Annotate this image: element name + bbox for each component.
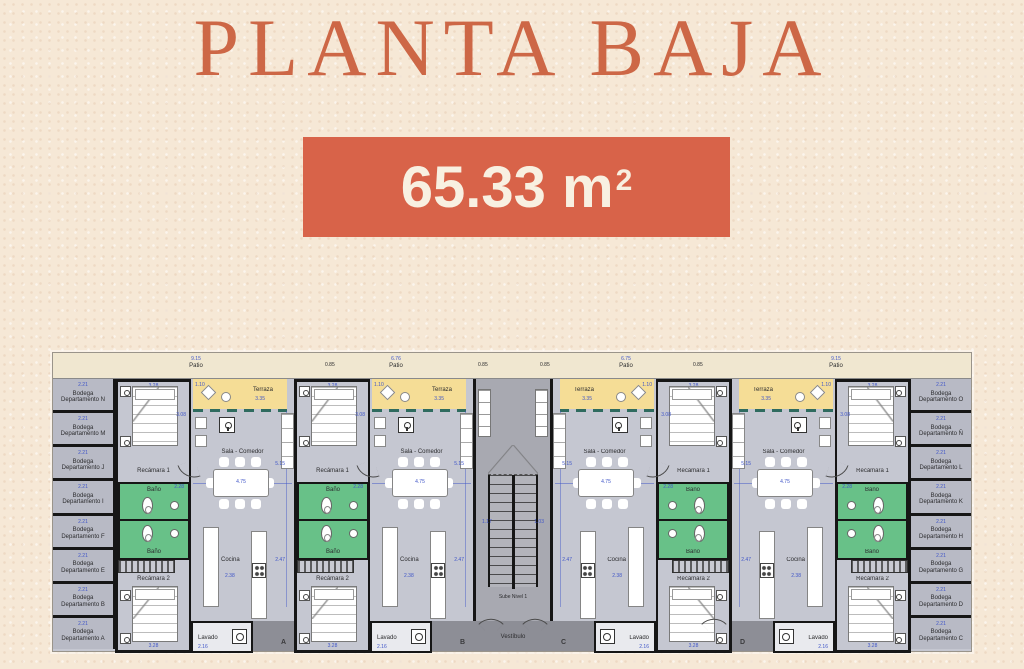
room-dim: 2.47 <box>562 557 572 563</box>
bodega-cell: 2.21 Bodega Departamento H <box>911 516 971 550</box>
apartment-d: 3.28 3.08 Recámara 1 2.28 Baño <box>732 379 911 653</box>
living-column: 1.10 Terraza 3.35 Sala - Comedor 5.15 <box>553 379 656 653</box>
room-dim: 1.10 <box>821 382 831 388</box>
apartment-letter: D <box>740 639 745 646</box>
bodega-cell: 2.21 Bodega Departamento K <box>911 481 971 515</box>
lavado-label: Lavado <box>377 635 397 641</box>
closet-icon <box>118 560 175 573</box>
closet-icon <box>851 560 908 573</box>
terraza-label: Terraza <box>253 387 273 393</box>
room-bano-1: 2.28 Baño <box>659 484 727 521</box>
kitchen-counter-icon <box>203 527 219 607</box>
bodega-cell: 2.21 Bodega Departamento D <box>911 584 971 618</box>
room-lavado: Lavado 2.16 <box>773 621 835 653</box>
room-recamara-1: 3.28 3.08 Recámara 1 <box>658 382 729 482</box>
room-cocina: Cocina 2.47 2.38 <box>191 527 294 621</box>
room-dim: 3.28 <box>658 643 729 649</box>
bathrooms-block: 2.28 Baño Baño <box>836 482 908 560</box>
room-dim: 3.08 <box>661 412 671 418</box>
sofa-icon <box>819 417 831 429</box>
room-recamara-2: Recámara 2 3.28 <box>297 560 368 650</box>
room-dim: 2.47 <box>275 557 285 563</box>
apartment-layout: 3.28 3.08 Recámara 1 2.28 Baño <box>732 379 911 653</box>
stove-icon <box>760 563 774 578</box>
room-recamara-1: 3.28 3.08 Recámara 1 <box>837 382 908 482</box>
tv-icon <box>219 417 235 433</box>
cocina-label: Cocina <box>221 557 240 563</box>
nightstand-icon <box>120 436 131 447</box>
patio-label-group: 9.15 Patio <box>776 356 896 370</box>
bodega-label: Bodega Departamento Ñ <box>912 425 970 438</box>
room-recamara-1: 3.28 3.08 Recámara 1 <box>297 382 368 482</box>
room-dim: 2.16 <box>377 644 387 650</box>
bathrooms-block: 2.28 Baño Baño <box>118 482 190 560</box>
room-terraza: 1.10 Terraza 3.35 <box>560 379 654 409</box>
room-dim: 3.08 <box>176 412 186 418</box>
room-dim: 3.28 <box>837 643 908 649</box>
toilet-icon <box>321 525 332 542</box>
vestibulo-label: Vestíbulo <box>473 634 553 640</box>
bodega-dim: 2.21 <box>911 519 971 525</box>
bodega-column-right: 2.21 Bodega Departamento O 2.21 Bodega D… <box>909 379 971 649</box>
area-value: 65.33 m <box>401 154 614 221</box>
room-dim: 5.15 <box>741 461 751 467</box>
bed-icon <box>311 586 357 642</box>
bodega-cell: 2.21 Bodega Departamento M <box>53 413 113 447</box>
bano-label: Baño <box>120 549 188 555</box>
bodega-label: Bodega Departamento O <box>912 391 970 404</box>
bedroom-column: 3.28 3.08 Recámara 1 2.28 Baño <box>115 379 191 653</box>
room-sala-comedor: Sala - Comedor 5.15 4.75 <box>732 409 835 527</box>
bodega-dim: 2.21 <box>911 484 971 490</box>
bodega-label: Bodega Departamento M <box>54 425 112 438</box>
room-dim: 3.08 <box>840 412 850 418</box>
bodega-dim: 2.21 <box>53 553 113 559</box>
bodega-column-left: 2.21 Bodega Departamento N 2.21 Bodega D… <box>53 379 115 649</box>
room-dim: 3.35 <box>255 396 265 402</box>
toilet-icon <box>142 525 153 542</box>
sink-icon <box>349 501 358 510</box>
room-lavado: Lavado 2.16 <box>594 621 656 653</box>
sink-icon <box>668 501 677 510</box>
room-recamara-1: 3.28 3.08 Recámara 1 <box>118 382 189 482</box>
room-dim: 2.47 <box>454 557 464 563</box>
window-icon <box>478 389 491 437</box>
room-terraza: 1.10 Terraza 3.35 <box>739 379 833 409</box>
bedroom-column: 3.28 3.08 Recámara 1 2.28 Baño <box>656 379 732 653</box>
stove-icon <box>252 563 266 578</box>
nightstand-icon <box>299 386 310 397</box>
bodega-label: Bodega Departamento J <box>54 459 112 472</box>
bodega-dim: 2.21 <box>53 587 113 593</box>
bedroom-column: 3.28 3.08 Recámara 1 2.28 Baño <box>294 379 370 653</box>
room-dim: 4.75 <box>213 479 269 485</box>
planter-circle-icon <box>616 392 626 402</box>
sink-icon <box>847 529 856 538</box>
bano-label: Baño <box>659 549 727 555</box>
terraza-label: Terraza <box>432 387 452 393</box>
room-dim: 1.10 <box>374 382 384 388</box>
apartment-layout: 3.28 3.08 Recámara 1 2.28 Baño <box>115 379 294 653</box>
window-icon <box>535 389 548 437</box>
room-cocina: Cocina 2.47 2.38 <box>553 527 656 621</box>
cocina-label: Cocina <box>400 557 419 563</box>
tv-icon <box>791 417 807 433</box>
toilet-icon <box>142 497 153 514</box>
bodega-dim: 2.21 <box>53 450 113 456</box>
washer-icon <box>779 629 794 644</box>
area-superscript: 2 <box>616 164 633 198</box>
room-dim: 5.15 <box>275 461 285 467</box>
washer-icon <box>600 629 615 644</box>
tv-icon <box>612 417 628 433</box>
sala-comedor-label: Sala - Comedor <box>370 449 473 455</box>
tv-icon <box>398 417 414 433</box>
sala-comedor-label: Sala - Comedor <box>191 449 294 455</box>
apartment-letter: B <box>460 639 465 646</box>
room-recamara-2: Recámara 2 3.28 <box>658 560 729 650</box>
bodega-cell: 2.21 Bodega Departamento B <box>53 584 113 618</box>
apartment-layout: 3.28 3.08 Recámara 1 2.28 Baño <box>294 379 473 653</box>
bodega-cell: 2.21 Bodega Departamento Ñ <box>911 413 971 447</box>
bodega-cell: 2.21 Bodega Departamento O <box>911 379 971 413</box>
bodega-dim: 2.21 <box>911 382 971 388</box>
sofa-icon <box>195 435 207 447</box>
patio-label: Patio <box>336 362 456 370</box>
room-recamara-2: Recámara 2 3.28 <box>118 560 189 650</box>
poster-page: { "header": { "title": "PLANTA BAJA", "a… <box>0 0 1024 669</box>
recamara1-label: Recámara 1 <box>658 468 729 474</box>
lavado-label: Lavado <box>629 635 649 641</box>
room-dim: 4.75 <box>578 479 634 485</box>
cocina-label: Cocina <box>607 557 626 563</box>
room-dim: 5.15 <box>562 461 572 467</box>
sofa-icon <box>640 435 652 447</box>
apartment-c: 3.28 3.08 Recámara 1 2.28 Baño <box>553 379 732 653</box>
room-lavado: Lavado 2.16 <box>191 621 253 653</box>
bodega-cell: 2.21 Bodega Departamento E <box>53 550 113 584</box>
closet-icon <box>297 560 354 573</box>
bed-icon <box>132 386 178 446</box>
bodega-label: Bodega Departamento A <box>54 629 112 642</box>
patio-label-group: 6.75 Patio <box>566 356 686 370</box>
bodega-cell: 2.21 Bodega Departamento G <box>911 550 971 584</box>
stair-hall: 1.17 1.03 Sube Nivel 1 <box>473 379 553 621</box>
stair-landing <box>488 445 538 475</box>
bodega-dim: 2.21 <box>911 450 971 456</box>
bodega-label: Bodega Departamento B <box>54 595 112 608</box>
nightstand-icon <box>895 386 906 397</box>
sofa-icon <box>195 417 207 429</box>
kitchen-counter-icon <box>628 527 644 607</box>
sofa-icon <box>640 417 652 429</box>
closet-icon <box>672 560 729 573</box>
room-terraza: 1.10 Terraza 3.35 <box>193 379 287 409</box>
sink-icon <box>349 529 358 538</box>
stove-icon <box>581 563 595 578</box>
bed-icon <box>132 586 178 642</box>
bodega-label: Bodega Departamento G <box>912 561 970 574</box>
toilet-icon <box>873 497 884 514</box>
apartment-letter: A <box>281 639 286 646</box>
room-dim: 2.38 <box>404 573 414 579</box>
terraza-label: Terraza <box>753 387 773 393</box>
bodega-dim: 2.21 <box>53 382 113 388</box>
sink-icon <box>170 529 179 538</box>
room-dim: 2.16 <box>639 644 649 650</box>
recamara2-label: Recámara 2 <box>658 576 729 582</box>
recamara2-label: Recámara 2 <box>297 576 368 582</box>
stove-icon <box>431 563 445 578</box>
bodega-dim: 2.21 <box>53 621 113 627</box>
recamara1-label: Recámara 1 <box>837 468 908 474</box>
room-bano-1: 2.28 Baño <box>299 484 367 521</box>
stair-spine-wall <box>512 475 515 589</box>
patio-side-dim: 0.85 <box>478 362 488 368</box>
bano-label: Baño <box>659 487 727 493</box>
bedroom-column: 3.28 3.08 Recámara 1 2.28 Baño <box>835 379 911 653</box>
nightstand-icon <box>716 386 727 397</box>
planter-circle-icon <box>795 392 805 402</box>
patio-label-group: 6.76 Patio <box>336 356 456 370</box>
washer-icon <box>411 629 426 644</box>
lavado-label: Lavado <box>808 635 828 641</box>
bed-icon <box>848 586 894 642</box>
sink-icon <box>170 501 179 510</box>
page-title: PLANTA BAJA <box>0 4 1024 92</box>
room-bano-2: Baño <box>120 521 188 558</box>
bodega-dim: 2.21 <box>911 621 971 627</box>
toilet-icon <box>694 525 705 542</box>
patio-strip: 9.15 Patio 6.76 Patio 6.75 Patio 9.15 Pa… <box>53 353 971 379</box>
bano-label: Baño <box>838 549 906 555</box>
dining-chairs-icon <box>398 457 408 467</box>
stair-dim: 1.03 <box>534 519 544 525</box>
room-cocina: Cocina 2.47 2.38 <box>370 527 473 621</box>
room-dim: 3.08 <box>355 412 365 418</box>
bodega-cell: 2.21 Bodega Departamento F <box>53 516 113 550</box>
living-column: 1.10 Terraza 3.35 Sala - Comedor 5.15 <box>191 379 294 653</box>
patio-side-dim: 0.85 <box>325 362 335 368</box>
room-bano-2: Baño <box>838 521 906 558</box>
living-column: 1.10 Terraza 3.35 Sala - Comedor 5.15 <box>370 379 473 653</box>
stair-dim: 1.17 <box>482 519 492 525</box>
bed-icon <box>311 386 357 446</box>
room-dim: 1.10 <box>195 382 205 388</box>
room-bano-2: Baño <box>659 521 727 558</box>
room-bano-1: 2.28 Baño <box>120 484 188 521</box>
room-dim: 2.47 <box>741 557 751 563</box>
bano-label: Baño <box>838 487 906 493</box>
room-dim: 2.16 <box>818 644 828 650</box>
dining-chairs-icon <box>219 457 229 467</box>
sala-comedor-label: Sala - Comedor <box>732 449 835 455</box>
bodega-cell: 2.21 Bodega Departamento J <box>53 447 113 481</box>
bodega-label: Bodega Departamento K <box>912 493 970 506</box>
bodega-label: Bodega Departamento L <box>912 459 970 472</box>
bodega-dim: 2.21 <box>53 519 113 525</box>
patio-label: Patio <box>776 362 896 370</box>
nightstand-icon <box>299 590 310 601</box>
bodega-dim: 2.21 <box>911 587 971 593</box>
patio-label-group: 9.15 Patio <box>136 356 256 370</box>
bodega-cell: 2.21 Bodega Departamento A <box>53 618 113 649</box>
room-bano-2: Baño <box>299 521 367 558</box>
sofa-icon <box>819 435 831 447</box>
room-bano-1: 2.28 Baño <box>838 484 906 521</box>
room-dim: 4.75 <box>392 479 448 485</box>
room-dim: 3.35 <box>434 396 444 402</box>
bodega-label: Bodega Departamento I <box>54 493 112 506</box>
nightstand-icon <box>120 590 131 601</box>
room-dim: 1.10 <box>642 382 652 388</box>
bodega-label: Bodega Departamento F <box>54 527 112 540</box>
room-dim: 3.35 <box>582 396 592 402</box>
recamara2-label: Recámara 2 <box>118 576 189 582</box>
nightstand-icon <box>299 436 310 447</box>
room-dim: 2.38 <box>612 573 622 579</box>
sink-icon <box>847 501 856 510</box>
sofa-icon <box>374 435 386 447</box>
kitchen-counter-icon <box>807 527 823 607</box>
room-sala-comedor: Sala - Comedor 5.15 4.75 <box>553 409 656 527</box>
area-badge: 65.33 m2 <box>303 137 730 237</box>
bodega-dim: 2.21 <box>911 553 971 559</box>
room-dim: 4.75 <box>757 479 813 485</box>
terraza-label: Terraza <box>574 387 594 393</box>
bed-icon <box>669 386 715 446</box>
bodega-dim: 2.21 <box>53 416 113 422</box>
apartment-a: 3.28 3.08 Recámara 1 2.28 Baño <box>115 379 294 653</box>
room-dim: 3.28 <box>297 643 368 649</box>
patio-label: Patio <box>566 362 686 370</box>
nightstand-icon <box>716 590 727 601</box>
nightstand-icon <box>120 386 131 397</box>
bodega-label: Bodega Departamento D <box>912 595 970 608</box>
apartment-letter: C <box>561 639 566 646</box>
staircase-icon <box>488 475 538 587</box>
dining-chairs-icon <box>618 457 628 467</box>
room-sala-comedor: Sala - Comedor 5.15 4.75 <box>370 409 473 527</box>
cocina-label: Cocina <box>786 557 805 563</box>
room-dim: 5.15 <box>454 461 464 467</box>
planter-circle-icon <box>221 392 231 402</box>
lavado-label: Lavado <box>198 635 218 641</box>
bed-icon <box>669 586 715 642</box>
living-column: 1.10 Terraza 3.35 Sala - Comedor 5.15 <box>732 379 835 653</box>
toilet-icon <box>321 497 332 514</box>
nightstand-icon <box>895 590 906 601</box>
planter-circle-icon <box>400 392 410 402</box>
floor-plan: 9.15 Patio 6.76 Patio 6.75 Patio 9.15 Pa… <box>52 352 972 652</box>
room-dim: 3.28 <box>118 643 189 649</box>
patio-side-dim: 0.85 <box>693 362 703 368</box>
nightstand-icon <box>716 436 727 447</box>
apartment-b: 3.28 3.08 Recámara 1 2.28 Baño <box>294 379 473 653</box>
bathrooms-block: 2.28 Baño Baño <box>657 482 729 560</box>
room-dim: 2.16 <box>198 644 208 650</box>
washer-icon <box>232 629 247 644</box>
bodega-cell: 2.21 Bodega Departamento I <box>53 481 113 515</box>
bodega-label: Bodega Departamento C <box>912 629 970 642</box>
bodega-dim: 2.21 <box>53 484 113 490</box>
kitchen-counter-icon <box>382 527 398 607</box>
bodega-cell: 2.21 Bodega Departamento C <box>911 618 971 649</box>
apartment-layout: 3.28 3.08 Recámara 1 2.28 Baño <box>553 379 732 653</box>
room-sala-comedor: Sala - Comedor 5.15 4.75 <box>191 409 294 527</box>
bathrooms-block: 2.28 Baño Baño <box>297 482 369 560</box>
bodega-label: Bodega Departamento H <box>912 527 970 540</box>
bodega-label: Bodega Departamento E <box>54 561 112 574</box>
bodega-dim: 2.21 <box>911 416 971 422</box>
bodega-label: Bodega Departamento N <box>54 391 112 404</box>
room-dim: 2.38 <box>225 573 235 579</box>
sofa-icon <box>374 417 386 429</box>
bodega-cell: 2.21 Bodega Departamento N <box>53 379 113 413</box>
dining-chairs-icon <box>797 457 807 467</box>
room-terraza: 1.10 Terraza 3.35 <box>372 379 466 409</box>
room-lavado: Lavado 2.16 <box>370 621 432 653</box>
bano-label: Baño <box>299 549 367 555</box>
bed-icon <box>848 386 894 446</box>
patio-label: Patio <box>136 362 256 370</box>
bodega-cell: 2.21 Bodega Departamento L <box>911 447 971 481</box>
bano-label: Baño <box>299 487 367 493</box>
sink-icon <box>668 529 677 538</box>
sala-comedor-label: Sala - Comedor <box>553 449 656 455</box>
room-cocina: Cocina 2.47 2.38 <box>732 527 835 621</box>
toilet-icon <box>694 497 705 514</box>
sube-nivel-label: Sube Nivel 1 <box>476 594 550 600</box>
toilet-icon <box>873 525 884 542</box>
room-dim: 2.38 <box>791 573 801 579</box>
patio-side-dim: 0.85 <box>540 362 550 368</box>
bano-label: Baño <box>120 487 188 493</box>
nightstand-icon <box>895 436 906 447</box>
room-dim: 3.35 <box>761 396 771 402</box>
recamara2-label: Recámara 2 <box>837 576 908 582</box>
room-recamara-2: Recámara 2 3.28 <box>837 560 908 650</box>
